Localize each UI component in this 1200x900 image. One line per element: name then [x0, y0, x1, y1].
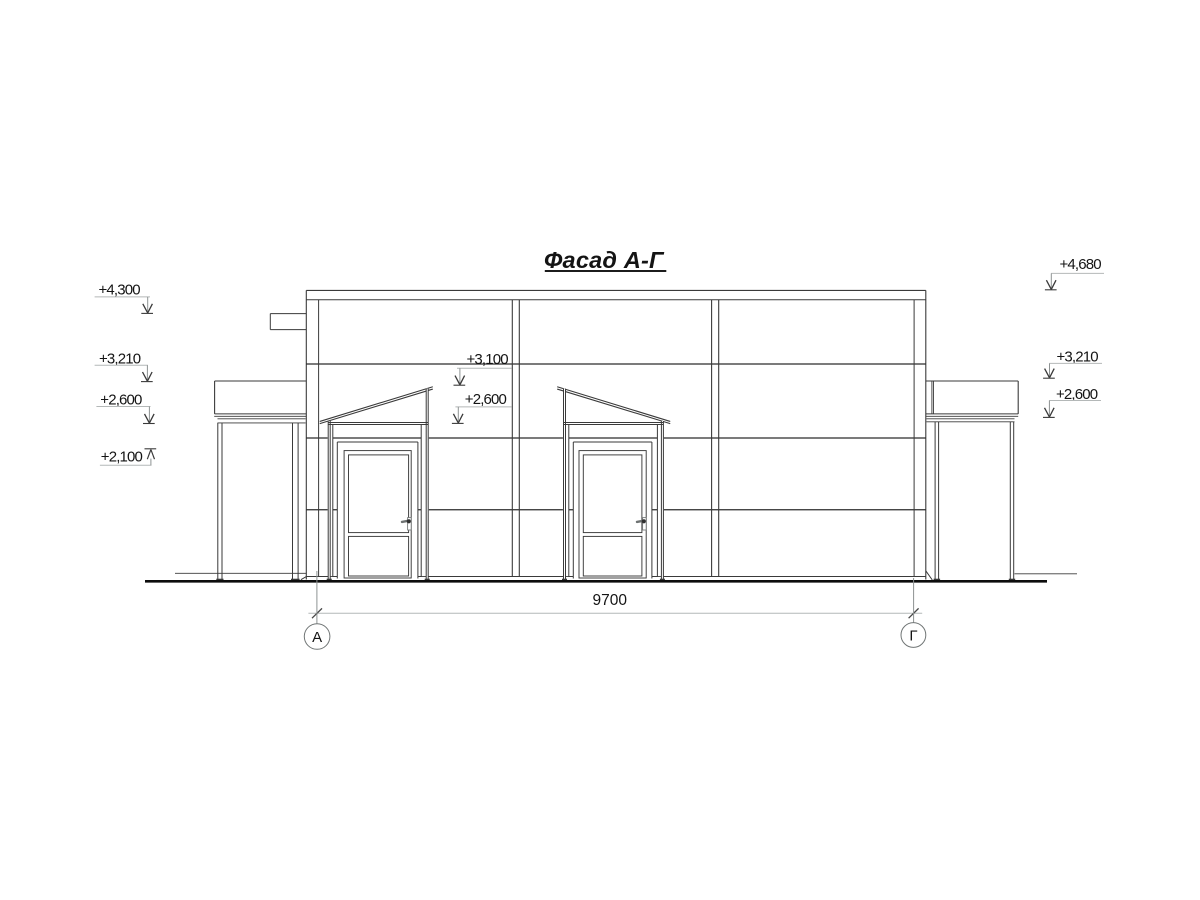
svg-text:+3,210: +3,210: [1057, 348, 1099, 365]
svg-text:+3,100: +3,100: [467, 351, 509, 368]
svg-text:+2,600: +2,600: [100, 391, 142, 408]
svg-text:Г: Г: [909, 628, 917, 645]
svg-text:Фасад А-Г: Фасад А-Г: [544, 247, 665, 273]
svg-text:+2,600: +2,600: [465, 391, 507, 408]
svg-text:+4,680: +4,680: [1060, 256, 1102, 273]
svg-text:9700: 9700: [593, 592, 628, 609]
svg-text:А: А: [312, 629, 322, 646]
svg-text:+2,100: +2,100: [101, 449, 143, 466]
svg-text:+4,300: +4,300: [99, 282, 141, 299]
